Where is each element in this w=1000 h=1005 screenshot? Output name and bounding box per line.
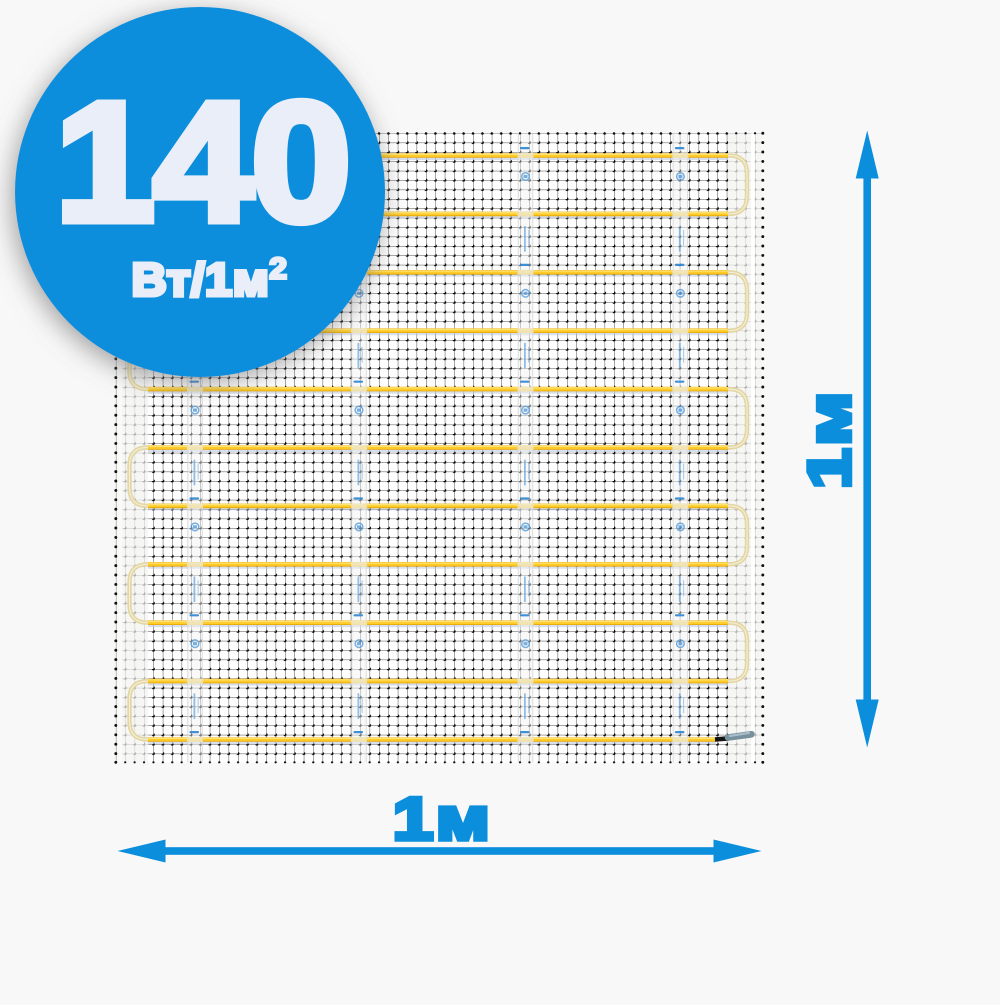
svg-text:1м: 1м — [393, 786, 493, 853]
svg-text:1м: 1м — [796, 389, 863, 489]
svg-text:140: 140 — [55, 67, 349, 257]
svg-text:Вт/1м2: Вт/1м2 — [131, 251, 287, 306]
